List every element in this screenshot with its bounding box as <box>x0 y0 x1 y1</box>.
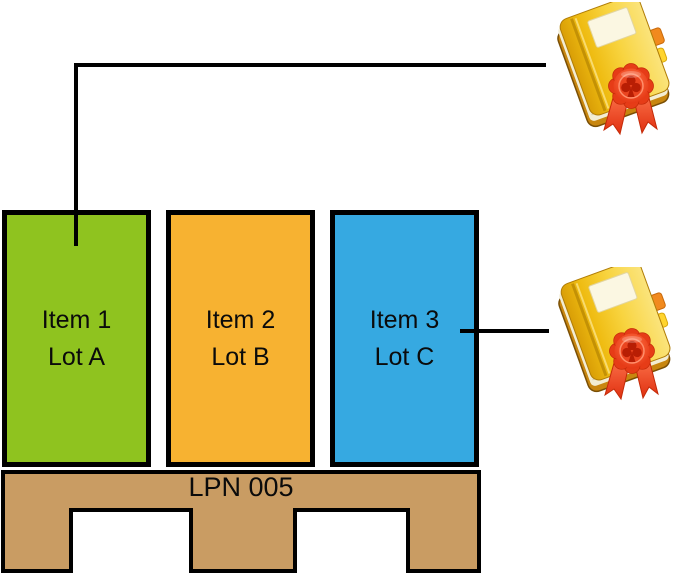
item-box-1: Item 1 Lot A <box>2 210 151 467</box>
item-name-label: Item 3 <box>370 302 439 339</box>
item-name-label: Item 1 <box>42 302 111 339</box>
certificate-book-icon <box>544 267 679 405</box>
connector-item3-certificate <box>460 329 549 333</box>
certificate-book-icon <box>543 2 679 140</box>
item-name-label: Item 2 <box>206 302 275 339</box>
connector-item1-certificate-vertical <box>74 63 78 246</box>
item-lot-label: Lot A <box>48 339 105 376</box>
diagram-canvas: Item 1 Lot A Item 2 Lot B Item 3 Lot C L… <box>0 0 679 575</box>
connector-item1-certificate-horizontal <box>74 63 546 67</box>
item-box-3: Item 3 Lot C <box>330 210 479 467</box>
pallet-lpn-label: LPN 005 <box>0 472 482 503</box>
item-box-2: Item 2 Lot B <box>166 210 315 467</box>
item-lot-label: Lot C <box>375 339 435 376</box>
item-lot-label: Lot B <box>211 339 269 376</box>
